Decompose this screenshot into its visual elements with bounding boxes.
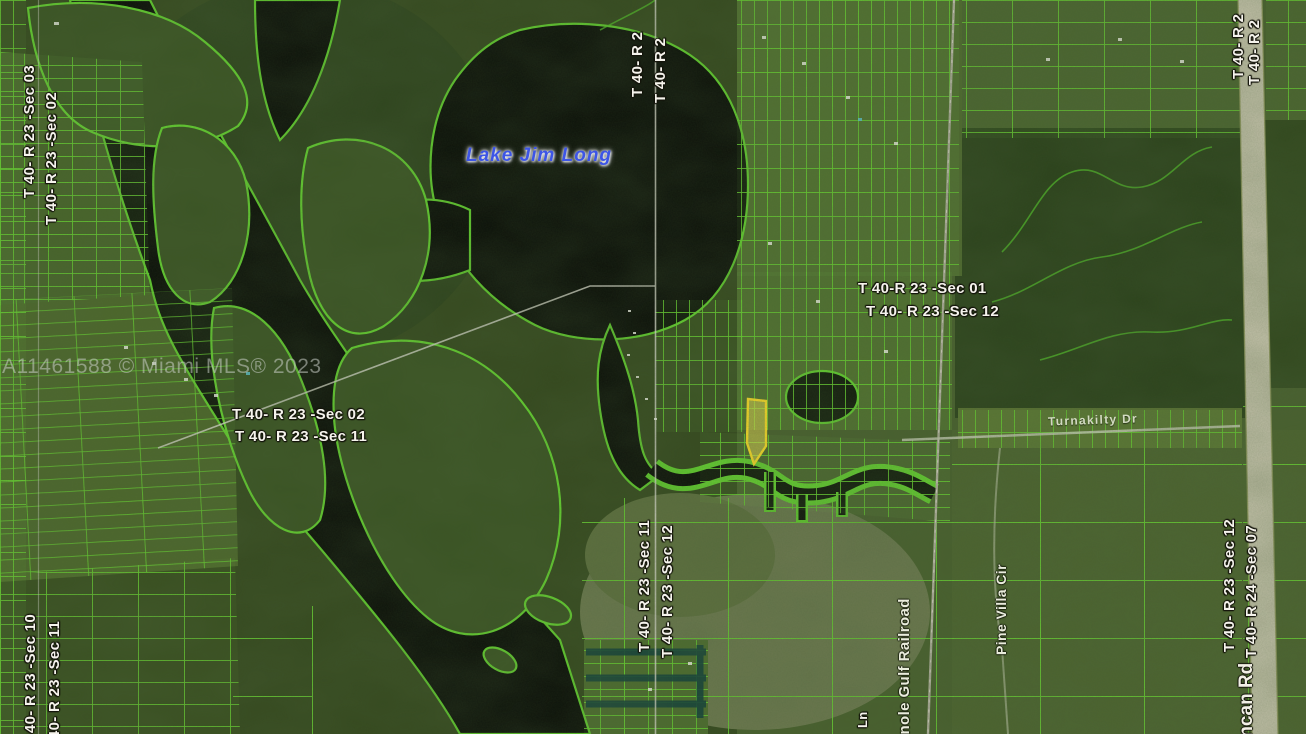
satellite-imagery[interactable] (0, 0, 1306, 734)
texture-noise (0, 0, 1306, 734)
aerial-parcel-map[interactable]: A11461588 © Miami MLS® 2023 Lake Jim Lon… (0, 0, 1306, 734)
